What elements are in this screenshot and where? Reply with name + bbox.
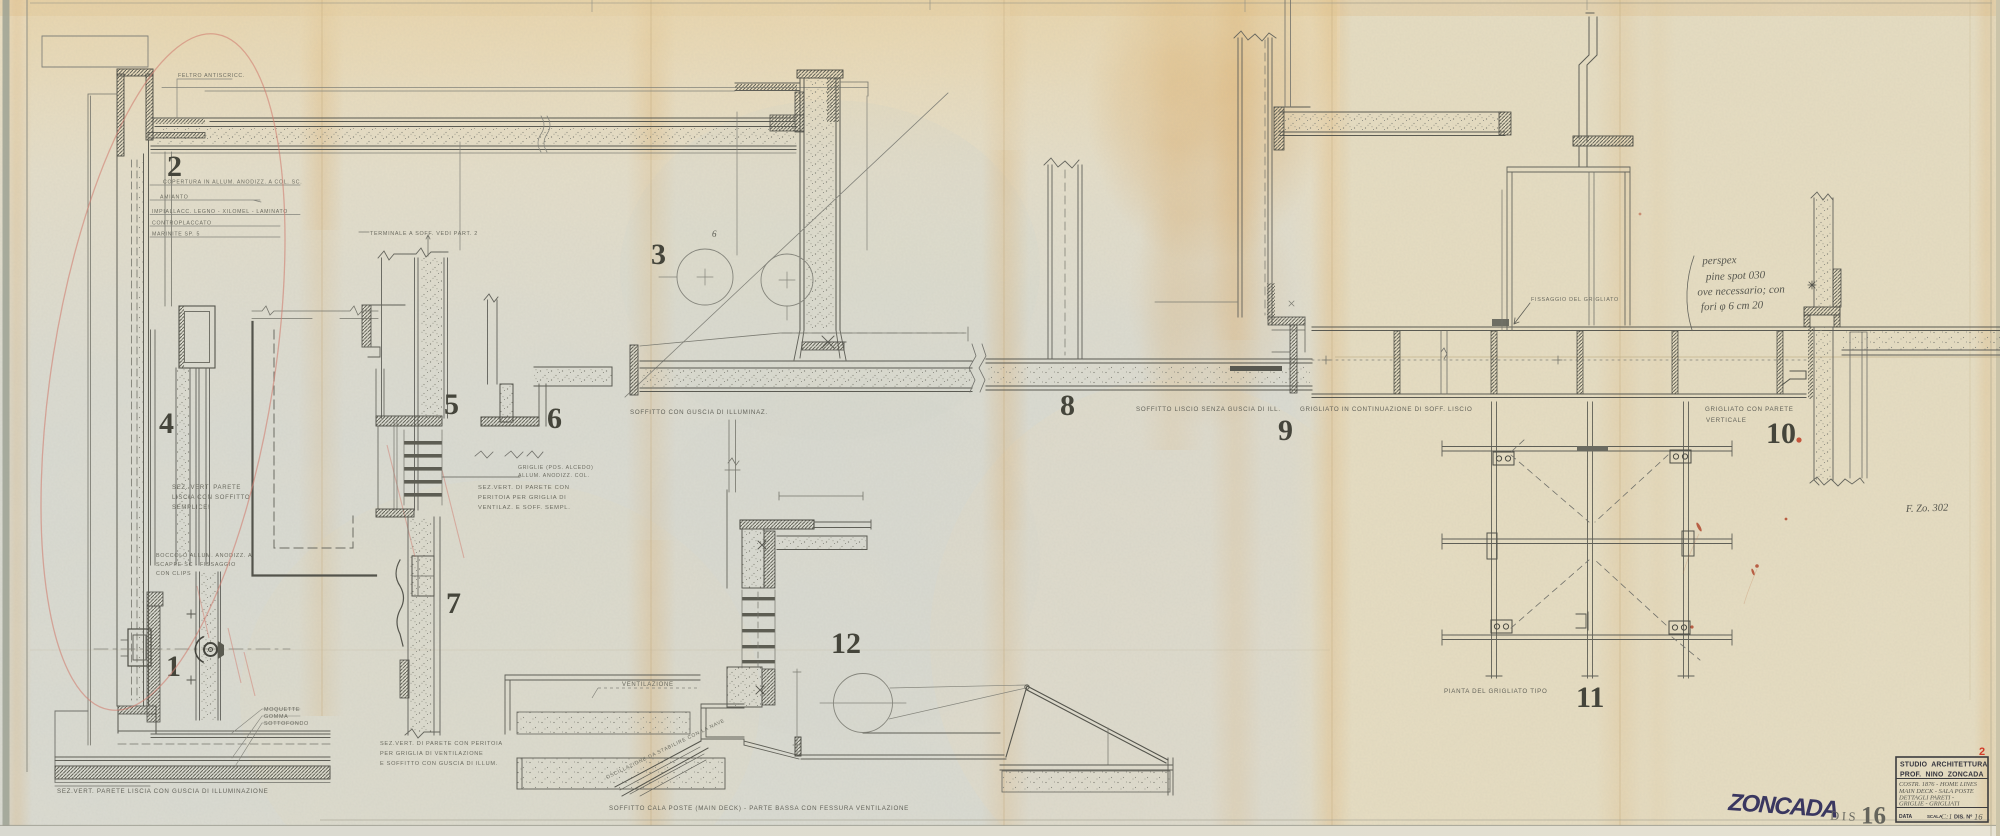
svg-text:GRIGLIE - GRIGLIATI: GRIGLIE - GRIGLIATI	[1899, 801, 1960, 808]
svg-text:CONTROPLACCATO: CONTROPLACCATO	[152, 221, 212, 227]
svg-text:TERMINALE A SOFF. VEDI PART. 2: TERMINALE A SOFF. VEDI PART. 2	[370, 231, 478, 237]
svg-text:SEZ.VERT. DI PARETE CON: SEZ.VERT. DI PARETE CON	[478, 485, 570, 491]
svg-text:4: 4	[159, 407, 174, 440]
svg-text:VENTILAZ. E SOFF. SEMPL.: VENTILAZ. E SOFF. SEMPL.	[478, 505, 571, 511]
svg-text:9: 9	[1278, 414, 1293, 447]
svg-text:SEZ. VERT. PARETE: SEZ. VERT. PARETE	[172, 485, 241, 491]
svg-text:pine spot 030: pine spot 030	[1705, 269, 1766, 283]
svg-text:SCAPPE SC - FISSAGGIO: SCAPPE SC - FISSAGGIO	[156, 562, 236, 568]
svg-text:5: 5	[444, 388, 459, 421]
svg-text:SOFFITTO LISCIO SENZA GUSCIA D: SOFFITTO LISCIO SENZA GUSCIA DI ILL.	[1136, 406, 1281, 413]
svg-text:E SOFFITTO CON GUSCIA DI ILLUM: E SOFFITTO CON GUSCIA DI ILLUM.	[380, 761, 498, 767]
svg-text:11: 11	[1576, 681, 1604, 714]
svg-text:SEMPLICE!: SEMPLICE!	[172, 505, 210, 511]
svg-text:GRIGLIE (POS. ALCEDO): GRIGLIE (POS. ALCEDO)	[518, 465, 594, 471]
svg-text:SEZ.VERT. PARETE LISCIA CON GU: SEZ.VERT. PARETE LISCIA CON GUSCIA DI IL…	[57, 788, 269, 795]
svg-text:SEZ.VERT. DI PARETE CON PERITO: SEZ.VERT. DI PARETE CON PERITOIA	[380, 741, 503, 747]
svg-text:10: 10	[1766, 417, 1796, 450]
svg-text:16: 16	[1861, 803, 1886, 830]
svg-text:perspex: perspex	[1701, 254, 1737, 267]
svg-text:LISCIA CON SOFFITTO: LISCIA CON SOFFITTO	[172, 495, 250, 501]
svg-text:VENTILAZIONE: VENTILAZIONE	[622, 682, 674, 688]
svg-text:6: 6	[547, 402, 562, 435]
svg-text:PIANTA DEL GRIGLIATO TIPO: PIANTA DEL GRIGLIATO TIPO	[1444, 688, 1547, 695]
svg-text:7: 7	[446, 587, 461, 620]
svg-text:8: 8	[1060, 389, 1075, 422]
svg-text:SOFFITTO CON GUSCIA DI ILLUMIN: SOFFITTO CON GUSCIA DI ILLUMINAZ.	[630, 409, 768, 416]
svg-text:MARINITE SP. 5: MARINITE SP. 5	[152, 232, 200, 238]
svg-text:3: 3	[651, 238, 666, 271]
svg-text:GOMMA: GOMMA	[264, 714, 288, 720]
svg-text:DIS. Nº: DIS. Nº	[1954, 815, 1972, 821]
svg-text:DATA: DATA	[1899, 814, 1913, 820]
svg-text:PROF. NINO ZONCADA: PROF. NINO ZONCADA	[1900, 772, 1984, 779]
svg-text:CON CLIPS: CON CLIPS	[156, 571, 191, 577]
svg-text:GRIGLIATO CON PARETE: GRIGLIATO CON PARETE	[1705, 406, 1794, 413]
svg-text:BOCCOLO ALLUM. ANODIZZ. A: BOCCOLO ALLUM. ANODIZZ. A	[156, 553, 252, 559]
svg-text:COPERTURA IN ALLUM. ANODIZZ. A: COPERTURA IN ALLUM. ANODIZZ. A COL. SC.	[163, 180, 302, 186]
svg-text:VERTICALE: VERTICALE	[1706, 417, 1747, 424]
svg-text:6: 6	[712, 229, 717, 239]
svg-text:ALLUM. ANODIZZ. COL.: ALLUM. ANODIZZ. COL.	[518, 473, 590, 479]
svg-text:FISSAGGIO DEL GRIGLIATO: FISSAGGIO DEL GRIGLIATO	[1531, 297, 1619, 303]
svg-text:MOQUETTE: MOQUETTE	[264, 707, 300, 713]
svg-text:C:1: C:1	[1941, 812, 1952, 821]
svg-text:16: 16	[1974, 812, 1983, 822]
svg-text:IMPIALLACC. LEGNO - XILOMEL -: IMPIALLACC. LEGNO - XILOMEL - LAMINATO	[152, 209, 288, 215]
svg-text:SOFFITTO CALA POSTE (MAIN DECK: SOFFITTO CALA POSTE (MAIN DECK) - PARTE …	[609, 805, 909, 812]
svg-text:STUDIO ARCHITETTURA: STUDIO ARCHITETTURA	[1900, 762, 1988, 769]
svg-text:12: 12	[831, 627, 861, 660]
svg-text:FELTRO ANTISCRICC.: FELTRO ANTISCRICC.	[178, 73, 245, 79]
svg-text:SOTTOFONDO: SOTTOFONDO	[264, 721, 309, 727]
svg-text:2: 2	[1979, 746, 1985, 758]
svg-text:2: 2	[167, 150, 182, 183]
svg-text:COSTR. 1876 - HOME LINES: COSTR. 1876 - HOME LINES	[1899, 781, 1978, 788]
svg-text:PER GRIGLIA DI VENTILAZIONE: PER GRIGLIA DI VENTILAZIONE	[380, 751, 483, 757]
svg-text:PERITOIA PER GRIGLIA DI: PERITOIA PER GRIGLIA DI	[478, 495, 566, 501]
svg-text:GRIGLIATO IN CONTINUAZIONE DI: GRIGLIATO IN CONTINUAZIONE DI SOFF. LISC…	[1300, 406, 1473, 413]
svg-text:fori φ 6 cm 20: fori φ 6 cm 20	[1701, 299, 1764, 313]
svg-text:DIS: DIS	[1830, 809, 1859, 824]
svg-text:F. Zo. 302: F. Zo. 302	[1905, 502, 1950, 515]
svg-text:AMIANTO: AMIANTO	[160, 195, 188, 201]
